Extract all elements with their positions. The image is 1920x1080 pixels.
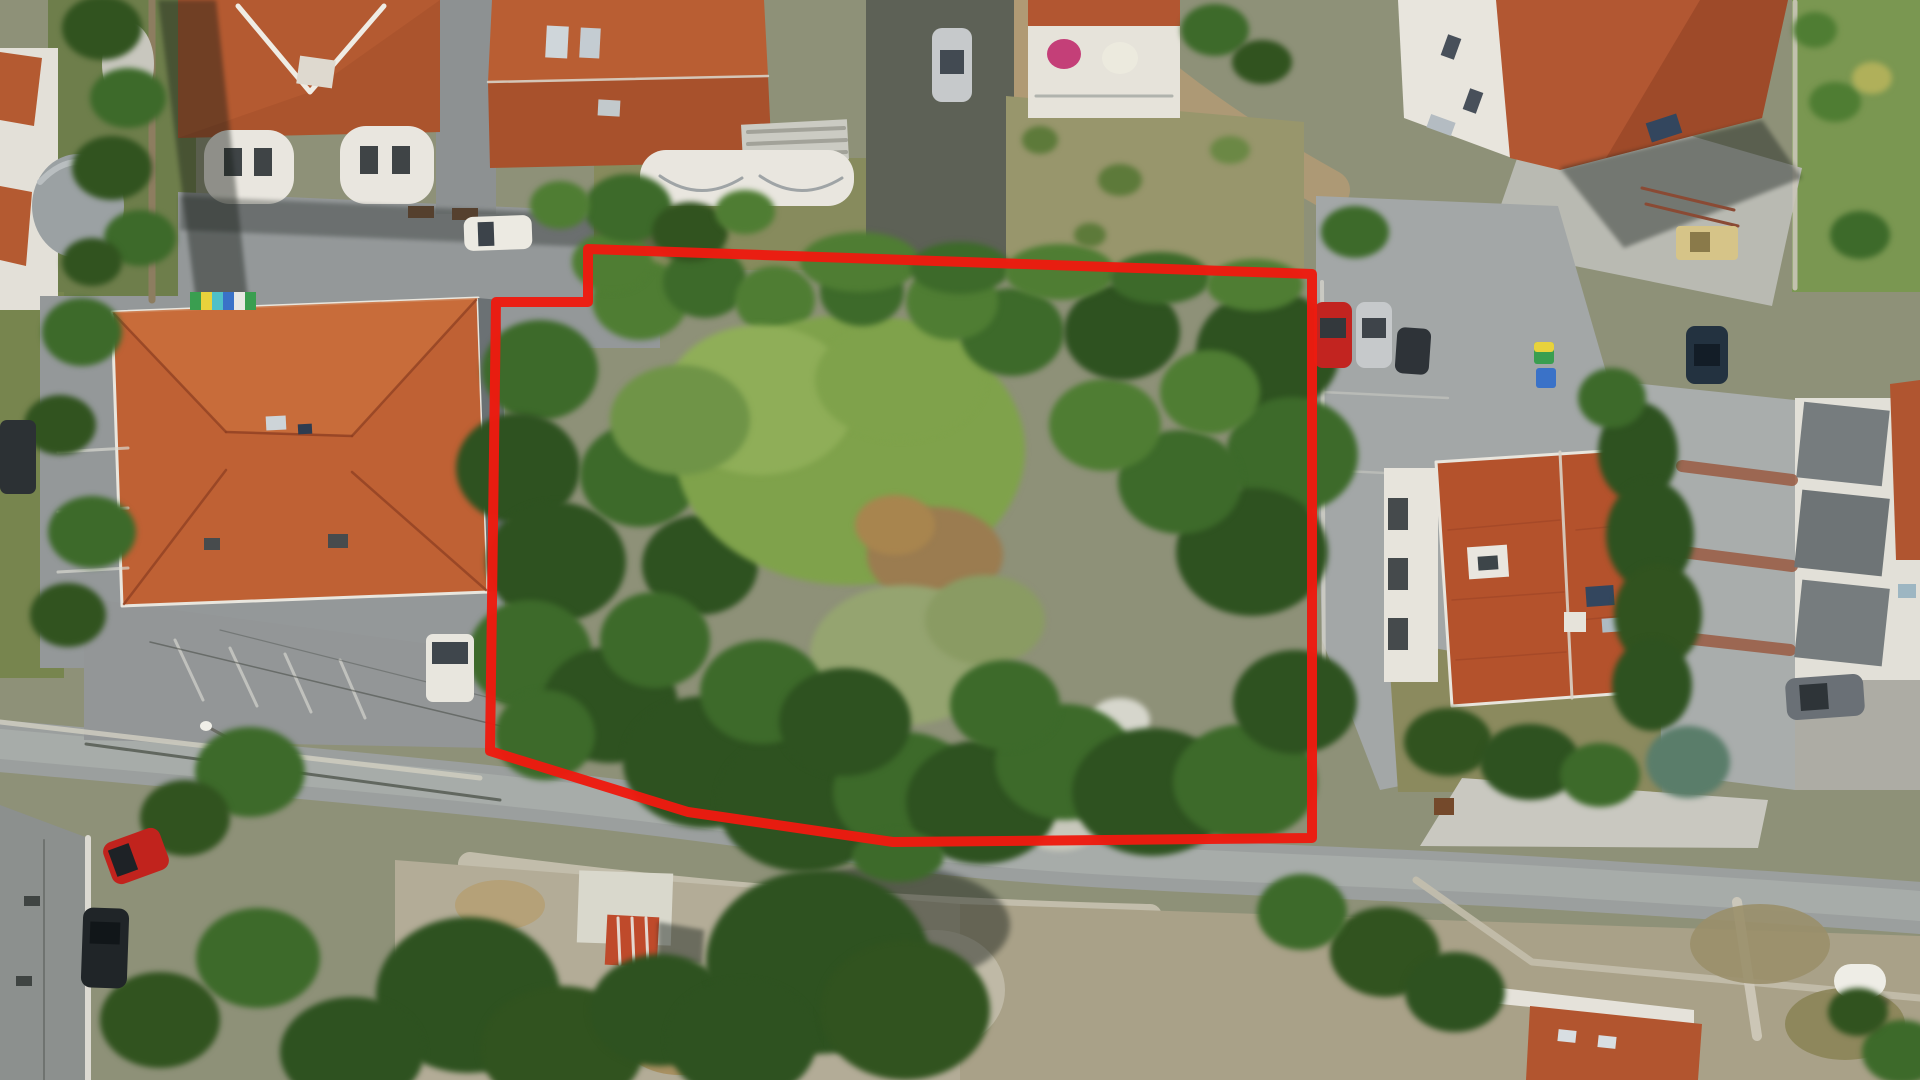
tree — [1049, 379, 1161, 471]
hedge — [90, 68, 166, 128]
bush — [530, 181, 590, 229]
car-dark-leftedge — [0, 420, 36, 494]
house1-chimney — [296, 56, 336, 89]
house6-window — [1898, 584, 1916, 598]
house9-skylight-2 — [1597, 1035, 1616, 1049]
machine-detail — [1690, 232, 1710, 252]
car-red-right-window — [1320, 318, 1346, 338]
umbrella-white — [1102, 42, 1138, 74]
tree — [196, 908, 320, 1008]
play-stripe-blue — [223, 292, 234, 310]
play-stripe-white — [234, 292, 245, 310]
bush — [1098, 164, 1142, 196]
house5-solar-panel — [1585, 585, 1614, 607]
shed-stripe-1 — [618, 918, 620, 964]
play-stripe-yellow — [201, 292, 212, 310]
tree — [30, 583, 106, 647]
bush — [1793, 12, 1837, 48]
bush-yellow — [1852, 62, 1892, 94]
aerial-photo — [0, 0, 1920, 1080]
car-silver-driveway-window — [940, 50, 964, 74]
house7-chimney-2 — [328, 534, 348, 548]
house5-chimney — [1564, 612, 1586, 632]
meadow-light — [610, 365, 750, 475]
car-grey-bottomright-window — [1799, 683, 1829, 711]
house3-roof-edge — [1028, 0, 1180, 26]
tree-bluegreen — [1646, 726, 1730, 798]
play-stripe-green-1 — [190, 292, 201, 310]
bush — [1809, 82, 1861, 122]
house5-balcony-3 — [1388, 618, 1408, 650]
house2-skylight-1 — [545, 25, 569, 58]
car-silver-right-window — [1362, 318, 1386, 338]
bush — [1232, 40, 1292, 84]
tree — [1405, 952, 1505, 1032]
umbrella-pink — [1047, 39, 1081, 69]
house2-skylight-3 — [598, 99, 621, 116]
house1-window-2 — [254, 148, 272, 176]
house5-balcony-1 — [1388, 498, 1408, 530]
aerial-photo-stage — [0, 0, 1920, 1080]
bush — [1210, 136, 1250, 164]
bush — [1022, 126, 1058, 154]
car-white-top — [463, 215, 532, 251]
house6-roof-1 — [1796, 402, 1889, 487]
tree — [1233, 650, 1357, 754]
tree — [48, 496, 136, 568]
house2-skylight-2 — [579, 27, 601, 58]
house5-balcony-2 — [1388, 558, 1408, 590]
hedge — [62, 238, 122, 286]
house7-skylight — [266, 415, 287, 430]
hedge — [1612, 639, 1692, 731]
house8-skylight-2 — [16, 976, 32, 986]
dry-brush-patch — [855, 495, 935, 555]
play-stripe-green-2 — [245, 292, 256, 310]
house1-window-4 — [392, 146, 410, 174]
hedge — [72, 136, 152, 200]
house9-skylight-1 — [1557, 1029, 1576, 1043]
tree — [600, 592, 710, 688]
house8-skylight-1 — [24, 896, 40, 906]
driveway-between-houses — [436, 0, 496, 214]
house1-balcony-2 — [340, 126, 434, 204]
house1-window-3 — [360, 146, 378, 174]
car-white-top-windshield — [478, 222, 495, 247]
play-stripe-teal — [212, 292, 223, 310]
car-darkblue-topright-window — [1694, 344, 1720, 366]
tree — [42, 298, 122, 366]
bush — [1560, 743, 1640, 807]
sage-patch — [925, 575, 1045, 665]
tree — [779, 668, 911, 776]
tree — [1257, 874, 1347, 950]
tree — [820, 940, 990, 1080]
house6-roof-2 — [1794, 490, 1890, 577]
bush — [1074, 223, 1106, 247]
bush — [1321, 206, 1389, 258]
car-dark-right — [1394, 327, 1431, 375]
bush — [1404, 708, 1492, 776]
drain-grate-1 — [408, 206, 434, 218]
bush — [1005, 244, 1115, 300]
bush — [1828, 988, 1888, 1036]
hedge — [1578, 368, 1646, 428]
bush — [1830, 211, 1890, 259]
brown-box — [1434, 798, 1454, 815]
house7-chimney-1 — [204, 538, 220, 550]
dry-patch-bottomright-1 — [1690, 904, 1830, 984]
house7-solar-panel — [298, 424, 313, 435]
house6-roof-3 — [1794, 580, 1890, 667]
recycle-bin-blue — [1536, 368, 1556, 388]
tree — [950, 660, 1060, 750]
dry-lawn-topright — [1006, 96, 1304, 270]
shed-stripe-2 — [632, 918, 634, 964]
tree — [1160, 350, 1260, 434]
car-black-bottomleft — [81, 907, 130, 989]
bush — [1110, 252, 1210, 304]
house5-dormer-window — [1478, 555, 1499, 570]
lamp-head — [200, 721, 212, 731]
car-white-pickup-cab — [432, 642, 468, 664]
recycle-bin-lid-yellow — [1534, 342, 1554, 352]
bush — [715, 190, 775, 234]
house2-roof-upper — [488, 0, 768, 82]
car-black-bottomleft-window — [90, 921, 121, 944]
